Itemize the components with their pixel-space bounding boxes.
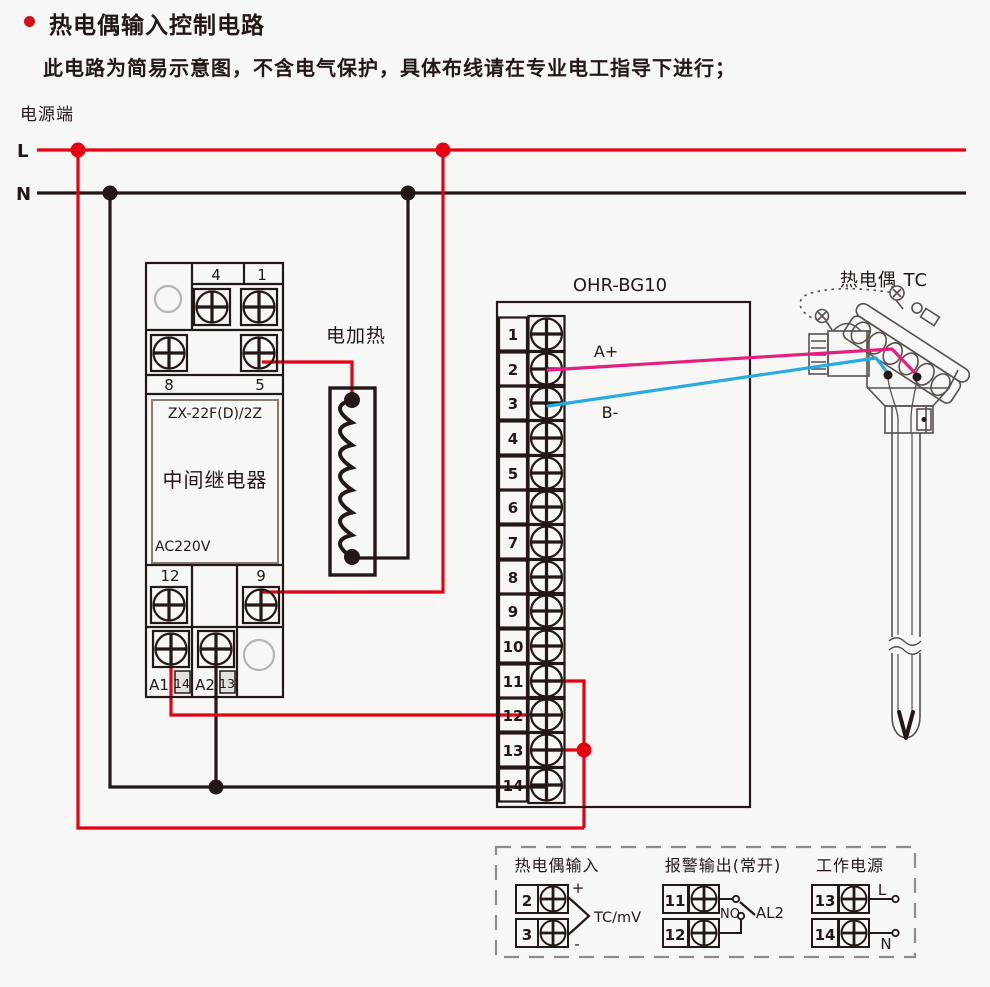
legend-screw bbox=[689, 885, 719, 913]
legend-t3-number: 3 bbox=[522, 926, 532, 944]
thermocouple-block: 热电偶 TC bbox=[800, 270, 972, 738]
relay-terminal-label: 5 bbox=[255, 376, 265, 394]
legend-n-label: N bbox=[880, 935, 891, 953]
heater-return-wire bbox=[352, 193, 408, 558]
terminal13-junction-dot bbox=[577, 743, 592, 758]
legend-tc-title: 热电偶输入 bbox=[514, 856, 599, 875]
line-l-label: L bbox=[17, 141, 28, 162]
a2-junction-dot bbox=[209, 780, 224, 795]
contact-node bbox=[892, 896, 898, 902]
tc-probe-inner-lines bbox=[898, 433, 912, 712]
tc-cap bbox=[839, 301, 971, 406]
legend-alarm-title: 报警输出(常开) bbox=[665, 856, 782, 875]
relay-voltage-label: AC220V bbox=[155, 539, 211, 555]
relay-coil-label-a1: A1 bbox=[149, 676, 169, 694]
legend-t14-number: 14 bbox=[815, 926, 836, 944]
relay-terminal-label: 8 bbox=[164, 376, 174, 394]
tc-probe-break bbox=[889, 638, 921, 655]
legend-power-wires bbox=[869, 899, 892, 933]
relay-screw-8 bbox=[151, 335, 187, 371]
relay-terminal-label: 1 bbox=[257, 266, 267, 284]
terminal-number: 12 bbox=[503, 707, 524, 725]
tc-terminal-dot bbox=[913, 373, 922, 382]
legend-plus-label: + bbox=[572, 879, 585, 897]
terminal-number: 1 bbox=[508, 326, 518, 344]
tc-head-body bbox=[867, 330, 958, 406]
legend-t11-number: 11 bbox=[665, 892, 686, 910]
legend-signal-label: TC/mV bbox=[593, 910, 641, 926]
terminal-number: 14 bbox=[503, 777, 524, 795]
legend-screw bbox=[689, 919, 719, 947]
legend-t12-number: 12 bbox=[665, 926, 686, 944]
legend-al2-label: AL2 bbox=[756, 904, 784, 922]
legend-power-title: 工作电源 bbox=[816, 856, 884, 875]
wiring-diagram: 电源端 L N bbox=[0, 0, 990, 987]
legend-screw bbox=[839, 885, 869, 913]
relay-screw-5 bbox=[241, 335, 277, 371]
relay-terminal-label: 4 bbox=[211, 266, 221, 284]
legend-power: 工作电源 13 14 L N bbox=[812, 856, 899, 953]
legend-bracket bbox=[568, 897, 589, 935]
relay-terminal-label: 12 bbox=[160, 567, 179, 585]
legend-screw bbox=[538, 919, 568, 947]
terminal-number: 8 bbox=[508, 569, 518, 587]
relay-indicator-circle bbox=[155, 286, 181, 312]
controller-block: OHR-BG10 1 2 3 4 5 6 7 8 9 bbox=[497, 275, 750, 807]
legend-minus-label: - bbox=[574, 935, 579, 953]
terminal-number: 4 bbox=[508, 430, 518, 448]
legend-alarm: 报警输出(常开) 11 12 NO AL2 bbox=[663, 856, 784, 947]
relay-screw-4 bbox=[194, 289, 230, 325]
wire-b-minus bbox=[548, 358, 887, 406]
heater-label: 电加热 bbox=[326, 325, 386, 347]
controller-terminal-strip bbox=[499, 316, 565, 803]
legend-no-label: NO bbox=[720, 907, 740, 922]
tc-chain-dotted bbox=[800, 289, 893, 320]
contact-node bbox=[733, 896, 739, 902]
terminal-number: 9 bbox=[508, 603, 518, 621]
controller-model-label: OHR-BG10 bbox=[573, 275, 667, 296]
power-terminal-label: 电源端 bbox=[20, 105, 74, 125]
legend-t2-number: 2 bbox=[522, 892, 532, 910]
power-section: 电源端 L N bbox=[16, 105, 966, 205]
relay-coil-label-a2: A2 bbox=[195, 676, 215, 694]
relay-tab-label-14: 14 bbox=[174, 676, 190, 691]
heater-outline bbox=[330, 388, 375, 575]
thermocouple-label: 热电偶 TC bbox=[840, 270, 928, 291]
terminal-number: 6 bbox=[508, 499, 518, 517]
relay-model-label: ZX-22F(D)/2Z bbox=[168, 406, 262, 422]
tc-clamp-dot bbox=[922, 417, 927, 422]
legend-tc-input: 热电偶输入 2 3 + - TC/mV bbox=[514, 856, 641, 953]
tc-probe-walls bbox=[892, 433, 920, 716]
terminal-number: 10 bbox=[503, 638, 524, 656]
terminal-number: 7 bbox=[508, 534, 518, 552]
terminal-number: 11 bbox=[503, 673, 524, 691]
wire-b-label: B- bbox=[602, 403, 619, 422]
relay-name-label: 中间继电器 bbox=[163, 468, 268, 492]
terminal-number: 13 bbox=[503, 742, 524, 760]
legend-panel: 热电偶输入 2 3 + - TC/mV 报警输出(常开) 11 12 NO bbox=[496, 847, 915, 957]
wire-a-label: A+ bbox=[594, 342, 618, 361]
tc-cap-tab bbox=[921, 308, 940, 325]
line-n-label: N bbox=[16, 184, 31, 205]
tc-neck-lines bbox=[892, 406, 926, 433]
relay-terminal-label: 9 bbox=[256, 567, 266, 585]
terminal-number: 3 bbox=[508, 395, 518, 413]
legend-screw bbox=[839, 919, 869, 947]
tc-small-screw-icon bbox=[912, 303, 922, 313]
tc-junction-mark bbox=[899, 712, 913, 738]
legend-t13-number: 13 bbox=[815, 892, 836, 910]
legend-l-label: L bbox=[878, 881, 887, 899]
heater-top-node bbox=[344, 392, 360, 408]
contact-node bbox=[892, 930, 898, 936]
tc-terminal-dot bbox=[884, 371, 893, 380]
relay-screw-a2 bbox=[198, 631, 234, 667]
relay-tab-label-13: 13 bbox=[219, 676, 235, 691]
heater-bottom-node bbox=[344, 549, 360, 565]
relay-screw-a1 bbox=[153, 631, 189, 667]
relay-screw-12 bbox=[151, 587, 187, 623]
heater-coil bbox=[340, 400, 352, 558]
relay-indicator-circle bbox=[244, 640, 274, 670]
terminal-number: 2 bbox=[508, 361, 518, 379]
terminal-number: 5 bbox=[508, 465, 518, 483]
legend-screw bbox=[538, 885, 568, 913]
relay-screw-1 bbox=[241, 289, 277, 325]
